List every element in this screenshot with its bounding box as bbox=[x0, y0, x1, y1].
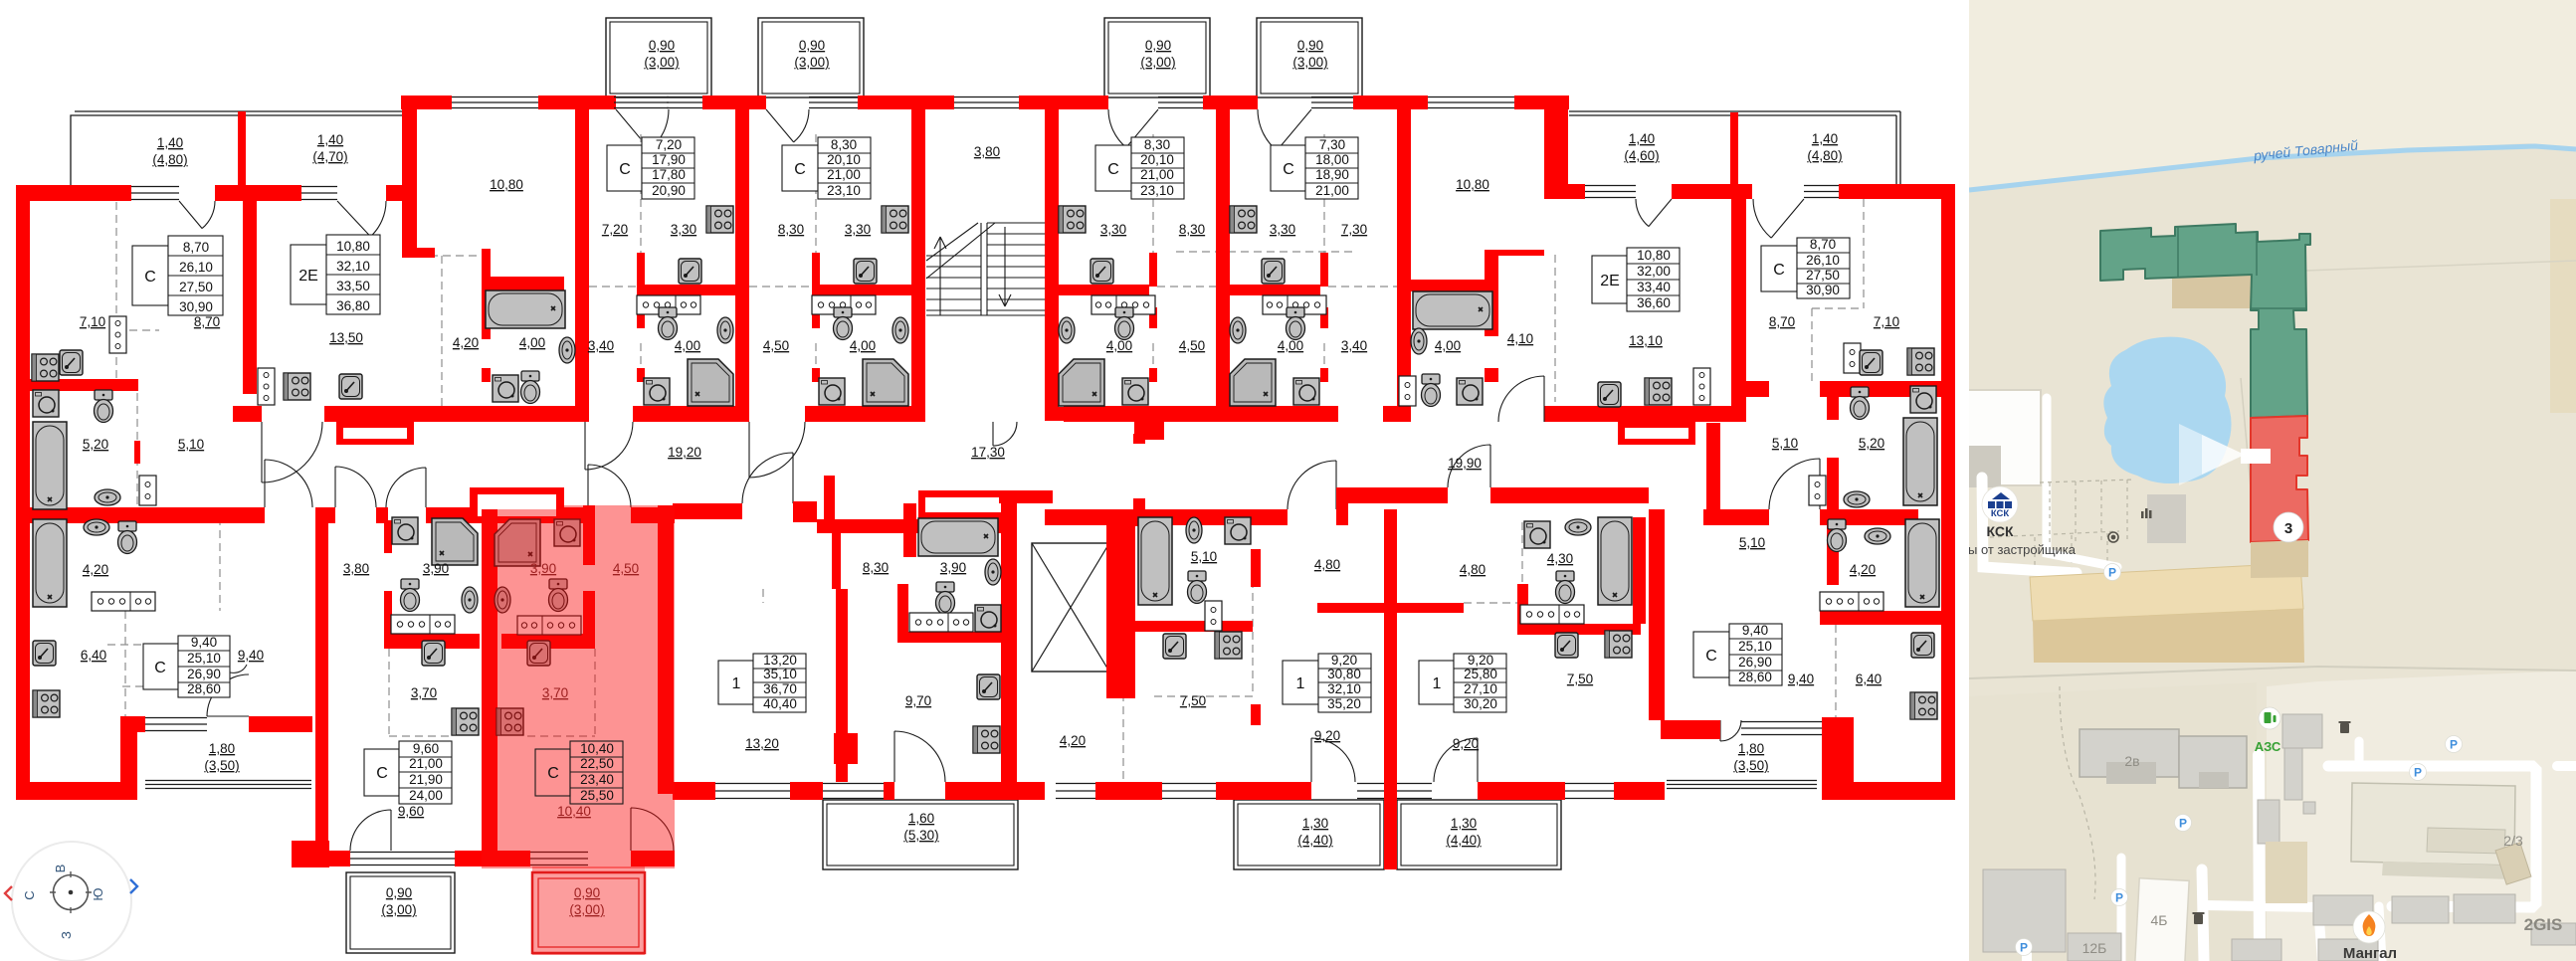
svg-text:(3,00): (3,00) bbox=[569, 902, 604, 917]
svg-text:20,10: 20,10 bbox=[827, 152, 861, 167]
svg-text:С: С bbox=[1773, 262, 1785, 279]
svg-text:25,50: 25,50 bbox=[580, 788, 614, 803]
svg-text:2Е: 2Е bbox=[298, 268, 318, 285]
svg-text:26,10: 26,10 bbox=[1806, 253, 1840, 268]
svg-text:12Б: 12Б bbox=[2082, 940, 2107, 956]
svg-text:8,30: 8,30 bbox=[1144, 137, 1170, 152]
svg-text:13,20: 13,20 bbox=[745, 736, 779, 751]
svg-text:10,80: 10,80 bbox=[490, 177, 523, 192]
svg-text:17,30: 17,30 bbox=[971, 445, 1005, 460]
svg-text:1: 1 bbox=[732, 675, 741, 692]
svg-text:27,10: 27,10 bbox=[1464, 681, 1497, 696]
svg-text:8,70: 8,70 bbox=[194, 314, 220, 329]
svg-text:22,50: 22,50 bbox=[580, 756, 614, 771]
svg-text:1,60: 1,60 bbox=[908, 811, 934, 826]
svg-text:7,50: 7,50 bbox=[1180, 693, 1206, 708]
svg-text:3,70: 3,70 bbox=[411, 685, 437, 700]
svg-text:4,80: 4,80 bbox=[1314, 557, 1340, 572]
svg-text:4,20: 4,20 bbox=[1060, 733, 1086, 748]
svg-text:КСК: КСК bbox=[1986, 523, 2013, 539]
svg-text:С: С bbox=[794, 161, 806, 178]
svg-text:0,90: 0,90 bbox=[386, 885, 412, 900]
svg-text:С: С bbox=[144, 269, 156, 286]
svg-text:30,90: 30,90 bbox=[1806, 283, 1840, 297]
svg-text:19,20: 19,20 bbox=[668, 445, 701, 460]
svg-text:27,50: 27,50 bbox=[179, 280, 213, 294]
svg-text:(4,80): (4,80) bbox=[152, 152, 187, 167]
svg-text:6,40: 6,40 bbox=[81, 648, 106, 663]
svg-text:13,20: 13,20 bbox=[763, 653, 797, 668]
svg-text:10,80: 10,80 bbox=[336, 239, 370, 254]
svg-text:8,70: 8,70 bbox=[1810, 237, 1836, 252]
svg-text:P: P bbox=[2450, 738, 2458, 752]
svg-text:4,00: 4,00 bbox=[1435, 338, 1461, 353]
svg-text:0,90: 0,90 bbox=[574, 885, 600, 900]
svg-text:10,80: 10,80 bbox=[1456, 177, 1489, 192]
svg-text:Мангал: Мангал bbox=[2343, 945, 2397, 961]
svg-text:35,20: 35,20 bbox=[1327, 696, 1361, 711]
svg-text:2/3: 2/3 bbox=[2503, 833, 2523, 849]
svg-text:36,60: 36,60 bbox=[1637, 295, 1671, 310]
svg-text:1,40: 1,40 bbox=[1812, 131, 1838, 146]
svg-text:28,60: 28,60 bbox=[187, 681, 221, 696]
svg-text:7,30: 7,30 bbox=[1341, 222, 1367, 237]
svg-text:9,40: 9,40 bbox=[1742, 623, 1768, 638]
svg-text:КСК: КСК bbox=[1991, 508, 2010, 519]
svg-text:27,50: 27,50 bbox=[1806, 268, 1840, 283]
svg-text:21,00: 21,00 bbox=[827, 167, 861, 182]
svg-text:18,00: 18,00 bbox=[1315, 152, 1349, 167]
svg-text:С: С bbox=[1283, 161, 1294, 178]
svg-text:С: С bbox=[1107, 161, 1119, 178]
svg-text:3,30: 3,30 bbox=[1100, 222, 1126, 237]
svg-text:С: С bbox=[376, 765, 388, 782]
svg-text:4,00: 4,00 bbox=[1278, 338, 1303, 353]
svg-text:1,30: 1,30 bbox=[1302, 816, 1328, 831]
svg-text:0,90: 0,90 bbox=[1297, 38, 1323, 53]
svg-text:4,20: 4,20 bbox=[83, 562, 108, 577]
svg-text:21,00: 21,00 bbox=[1315, 183, 1349, 198]
svg-text:8,30: 8,30 bbox=[778, 222, 804, 237]
svg-text:4,10: 4,10 bbox=[1507, 331, 1533, 346]
svg-text:(4,60): (4,60) bbox=[1624, 148, 1659, 163]
svg-text:4,50: 4,50 bbox=[1179, 338, 1205, 353]
svg-text:(4,80): (4,80) bbox=[1807, 148, 1842, 163]
svg-text:23,10: 23,10 bbox=[827, 183, 861, 198]
svg-text:(4,40): (4,40) bbox=[1297, 833, 1332, 848]
svg-text:(3,00): (3,00) bbox=[1292, 55, 1327, 70]
svg-text:36,70: 36,70 bbox=[763, 681, 797, 696]
svg-text:С: С bbox=[547, 765, 559, 782]
svg-text:(3,50): (3,50) bbox=[204, 758, 239, 773]
svg-text:4,00: 4,00 bbox=[675, 338, 700, 353]
svg-text:20,10: 20,10 bbox=[1140, 152, 1174, 167]
svg-text:6,40: 6,40 bbox=[1856, 672, 1882, 686]
svg-text:40,40: 40,40 bbox=[763, 696, 797, 711]
svg-text:P: P bbox=[2115, 891, 2123, 905]
svg-text:(3,00): (3,00) bbox=[794, 55, 829, 70]
svg-text:Ю: Ю bbox=[91, 887, 105, 900]
svg-text:9,20: 9,20 bbox=[1331, 653, 1357, 668]
svg-text:4,30: 4,30 bbox=[1547, 551, 1573, 566]
svg-text:4,50: 4,50 bbox=[613, 561, 639, 576]
svg-text:3,40: 3,40 bbox=[1341, 338, 1367, 353]
svg-text:9,20: 9,20 bbox=[1314, 728, 1340, 743]
svg-text:АЗС: АЗС bbox=[2255, 739, 2281, 754]
svg-text:7,50: 7,50 bbox=[1567, 672, 1593, 686]
svg-text:4,20: 4,20 bbox=[453, 335, 479, 350]
svg-text:3,70: 3,70 bbox=[542, 685, 568, 700]
svg-text:P: P bbox=[2414, 766, 2422, 780]
svg-text:1: 1 bbox=[1296, 675, 1305, 692]
svg-text:(3,00): (3,00) bbox=[381, 902, 416, 917]
svg-text:13,10: 13,10 bbox=[1629, 333, 1663, 348]
svg-text:25,10: 25,10 bbox=[187, 651, 221, 666]
svg-text:С: С bbox=[154, 660, 166, 676]
svg-text:7,10: 7,10 bbox=[80, 314, 105, 329]
svg-text:30,20: 30,20 bbox=[1464, 696, 1497, 711]
svg-text:ы от застройщика: ы от застройщика bbox=[1968, 542, 2077, 557]
svg-text:21,00: 21,00 bbox=[409, 756, 443, 771]
svg-text:33,40: 33,40 bbox=[1637, 280, 1671, 294]
svg-text:5,10: 5,10 bbox=[1772, 436, 1798, 451]
svg-text:19,90: 19,90 bbox=[1448, 456, 1482, 471]
svg-text:4,00: 4,00 bbox=[519, 335, 545, 350]
svg-text:30,80: 30,80 bbox=[1327, 667, 1361, 681]
svg-text:9,40: 9,40 bbox=[191, 635, 217, 650]
svg-text:3,80: 3,80 bbox=[974, 144, 1000, 159]
svg-text:25,10: 25,10 bbox=[1738, 639, 1772, 654]
svg-text:26,90: 26,90 bbox=[187, 667, 221, 681]
svg-text:9,60: 9,60 bbox=[398, 804, 424, 819]
svg-text:7,20: 7,20 bbox=[602, 222, 628, 237]
svg-text:5,20: 5,20 bbox=[1859, 436, 1884, 451]
svg-text:32,10: 32,10 bbox=[336, 259, 370, 274]
svg-text:35,10: 35,10 bbox=[763, 667, 797, 681]
svg-text:9,40: 9,40 bbox=[238, 648, 264, 663]
svg-text:0,90: 0,90 bbox=[649, 38, 675, 53]
svg-text:0,90: 0,90 bbox=[799, 38, 825, 53]
svg-text:10,80: 10,80 bbox=[1637, 248, 1671, 263]
svg-text:0,90: 0,90 bbox=[1145, 38, 1171, 53]
svg-text:17,80: 17,80 bbox=[652, 167, 686, 182]
svg-text:9,20: 9,20 bbox=[1468, 653, 1493, 668]
svg-text:P: P bbox=[2179, 817, 2187, 831]
svg-text:7,10: 7,10 bbox=[1874, 314, 1899, 329]
svg-text:P: P bbox=[2108, 566, 2116, 580]
svg-text:9,20: 9,20 bbox=[1453, 736, 1479, 751]
svg-text:8,30: 8,30 bbox=[1179, 222, 1205, 237]
svg-text:1: 1 bbox=[1433, 675, 1442, 692]
svg-text:С: С bbox=[22, 890, 37, 899]
svg-text:5,10: 5,10 bbox=[1191, 549, 1217, 564]
svg-text:4,00: 4,00 bbox=[1106, 338, 1132, 353]
svg-text:4,00: 4,00 bbox=[850, 338, 876, 353]
svg-text:26,90: 26,90 bbox=[1738, 655, 1772, 670]
svg-text:С: С bbox=[619, 161, 631, 178]
svg-text:3,90: 3,90 bbox=[423, 561, 449, 576]
svg-text:24,00: 24,00 bbox=[409, 788, 443, 803]
svg-text:32,10: 32,10 bbox=[1327, 681, 1361, 696]
svg-text:23,40: 23,40 bbox=[580, 772, 614, 787]
svg-text:3,80: 3,80 bbox=[343, 561, 369, 576]
svg-text:23,10: 23,10 bbox=[1140, 183, 1174, 198]
svg-text:3,30: 3,30 bbox=[671, 222, 696, 237]
svg-text:2GIS: 2GIS bbox=[2524, 915, 2563, 934]
svg-text:2в: 2в bbox=[2124, 753, 2139, 769]
svg-text:9,40: 9,40 bbox=[1788, 672, 1814, 686]
svg-text:P: P bbox=[2020, 941, 2028, 955]
svg-text:В: В bbox=[53, 865, 68, 873]
svg-text:9,70: 9,70 bbox=[905, 693, 931, 708]
svg-text:7,20: 7,20 bbox=[656, 137, 682, 152]
svg-text:1,40: 1,40 bbox=[1629, 131, 1655, 146]
svg-text:5,10: 5,10 bbox=[1739, 535, 1765, 550]
svg-text:5,10: 5,10 bbox=[178, 437, 204, 452]
svg-text:30,90: 30,90 bbox=[179, 299, 213, 314]
svg-text:2Е: 2Е bbox=[1600, 273, 1620, 289]
svg-text:4,20: 4,20 bbox=[1850, 562, 1876, 577]
svg-text:8,70: 8,70 bbox=[183, 240, 209, 255]
svg-text:(5,30): (5,30) bbox=[903, 828, 938, 843]
svg-text:32,00: 32,00 bbox=[1637, 264, 1671, 279]
svg-text:3,90: 3,90 bbox=[940, 560, 966, 575]
svg-text:18,90: 18,90 bbox=[1315, 167, 1349, 182]
svg-text:(3,50): (3,50) bbox=[1733, 758, 1768, 773]
svg-text:8,30: 8,30 bbox=[831, 137, 857, 152]
svg-text:1,80: 1,80 bbox=[1738, 741, 1764, 756]
svg-text:21,00: 21,00 bbox=[1140, 167, 1174, 182]
svg-text:3,90: 3,90 bbox=[530, 561, 556, 576]
svg-text:З: З bbox=[59, 931, 74, 939]
svg-text:13,50: 13,50 bbox=[329, 330, 363, 345]
svg-text:3: 3 bbox=[2284, 520, 2292, 537]
svg-text:4Б: 4Б bbox=[2151, 912, 2168, 928]
svg-text:(3,00): (3,00) bbox=[1140, 55, 1175, 70]
svg-text:4,80: 4,80 bbox=[1460, 562, 1486, 577]
svg-text:С: С bbox=[1705, 648, 1717, 665]
svg-text:8,70: 8,70 bbox=[1769, 314, 1795, 329]
svg-text:10,40: 10,40 bbox=[557, 804, 591, 819]
svg-text:33,50: 33,50 bbox=[336, 279, 370, 293]
svg-text:17,90: 17,90 bbox=[652, 152, 686, 167]
svg-text:(4,70): (4,70) bbox=[312, 149, 347, 164]
svg-text:1,40: 1,40 bbox=[157, 135, 183, 150]
svg-text:5,20: 5,20 bbox=[83, 437, 108, 452]
svg-text:7,30: 7,30 bbox=[1319, 137, 1345, 152]
svg-text:3,30: 3,30 bbox=[1270, 222, 1295, 237]
svg-text:25,80: 25,80 bbox=[1464, 667, 1497, 681]
svg-text:28,60: 28,60 bbox=[1738, 670, 1772, 684]
svg-text:20,90: 20,90 bbox=[652, 183, 686, 198]
svg-text:1,40: 1,40 bbox=[317, 132, 343, 147]
svg-text:(4,40): (4,40) bbox=[1446, 833, 1481, 848]
svg-text:1,80: 1,80 bbox=[209, 741, 235, 756]
svg-text:3,40: 3,40 bbox=[588, 338, 614, 353]
svg-text:(3,00): (3,00) bbox=[644, 55, 679, 70]
svg-text:4,50: 4,50 bbox=[763, 338, 789, 353]
svg-text:26,10: 26,10 bbox=[179, 260, 213, 275]
svg-text:10,40: 10,40 bbox=[580, 741, 614, 756]
svg-text:21,90: 21,90 bbox=[409, 772, 443, 787]
svg-text:8,30: 8,30 bbox=[863, 560, 889, 575]
svg-text:3,30: 3,30 bbox=[845, 222, 871, 237]
svg-text:36,80: 36,80 bbox=[336, 298, 370, 313]
svg-text:1,30: 1,30 bbox=[1451, 816, 1477, 831]
svg-text:9,60: 9,60 bbox=[413, 741, 439, 756]
